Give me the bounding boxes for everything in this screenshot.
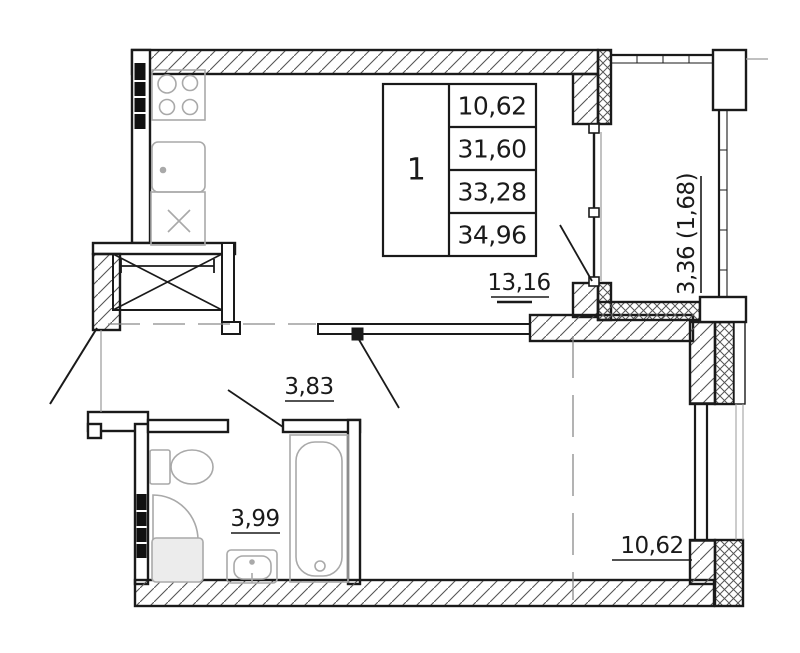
room-door-jamb [352,328,363,340]
entrance-door-swing [50,328,97,404]
balcony-pillar-top-right [713,50,746,110]
stove-icon [152,70,205,120]
pier-right-upper-insulation [715,322,734,404]
wall-partition-thin [318,324,530,334]
shower-corner-icon [153,495,198,540]
pier-right-upper-facing [734,322,745,404]
balcony-door-window [560,124,601,286]
unit-number: 1 [407,153,426,188]
pier-balcony-top [573,74,598,124]
bathroom-sink-icon [227,550,277,583]
table-value-row4: 34,96 [457,221,526,250]
label-hall-area: 3,83 [284,374,333,400]
kitchen-sink-icon [152,142,205,192]
table-value-row3: 33,28 [457,178,526,207]
toilet-icon [150,450,213,484]
bathtub-icon [290,435,348,582]
walls [88,50,746,606]
apartment-floor-plan: 1 10,62 31,60 33,28 34,96 13,16 3,83 3,9… [0,0,800,653]
label-room-area: 10,62 [620,533,683,559]
wall-bottom [135,580,714,606]
wardrobe-icon [113,254,222,310]
kitchen-fixtures [151,70,205,245]
label-bathroom-area: 3,99 [230,506,279,532]
room-door-swing [358,338,399,408]
living-room-window [690,403,714,541]
floor-plan-drawing: 1 10,62 31,60 33,28 34,96 13,16 3,83 3,9… [0,0,800,653]
mullion-node-middle [589,208,599,217]
wall-stub-wardrobe [222,243,234,322]
balcony-door-swing [560,225,592,281]
wall-bath-protrusion-step [88,424,101,438]
washing-machine-icon [152,538,203,582]
table-value-row2: 31,60 [457,135,526,164]
pier-right-upper [690,322,715,404]
pier-balcony-bottom [573,283,598,317]
label-kitchen-living-area: 13,16 [487,270,550,296]
bathroom-door-swing [228,390,283,427]
wall-balcony-bottom [598,302,700,320]
wall-hall-left [93,254,120,330]
kitchen-counter-icon [151,192,205,245]
wall-strip-top-right [598,50,611,124]
wall-bath-top-left [148,420,228,432]
table-value-row1: 10,62 [457,92,526,121]
wall-bath-right [348,420,360,584]
mullion-node-top [589,124,599,133]
glazing-right-ticks [719,150,727,270]
pier-right-lower [690,540,715,584]
balcony-block-bottom-right [700,297,746,322]
pier-right-lower-insulation [715,540,743,606]
label-balcony-area: 3,36 (1,68) [674,173,700,295]
glazing-top-ticks [637,55,689,63]
